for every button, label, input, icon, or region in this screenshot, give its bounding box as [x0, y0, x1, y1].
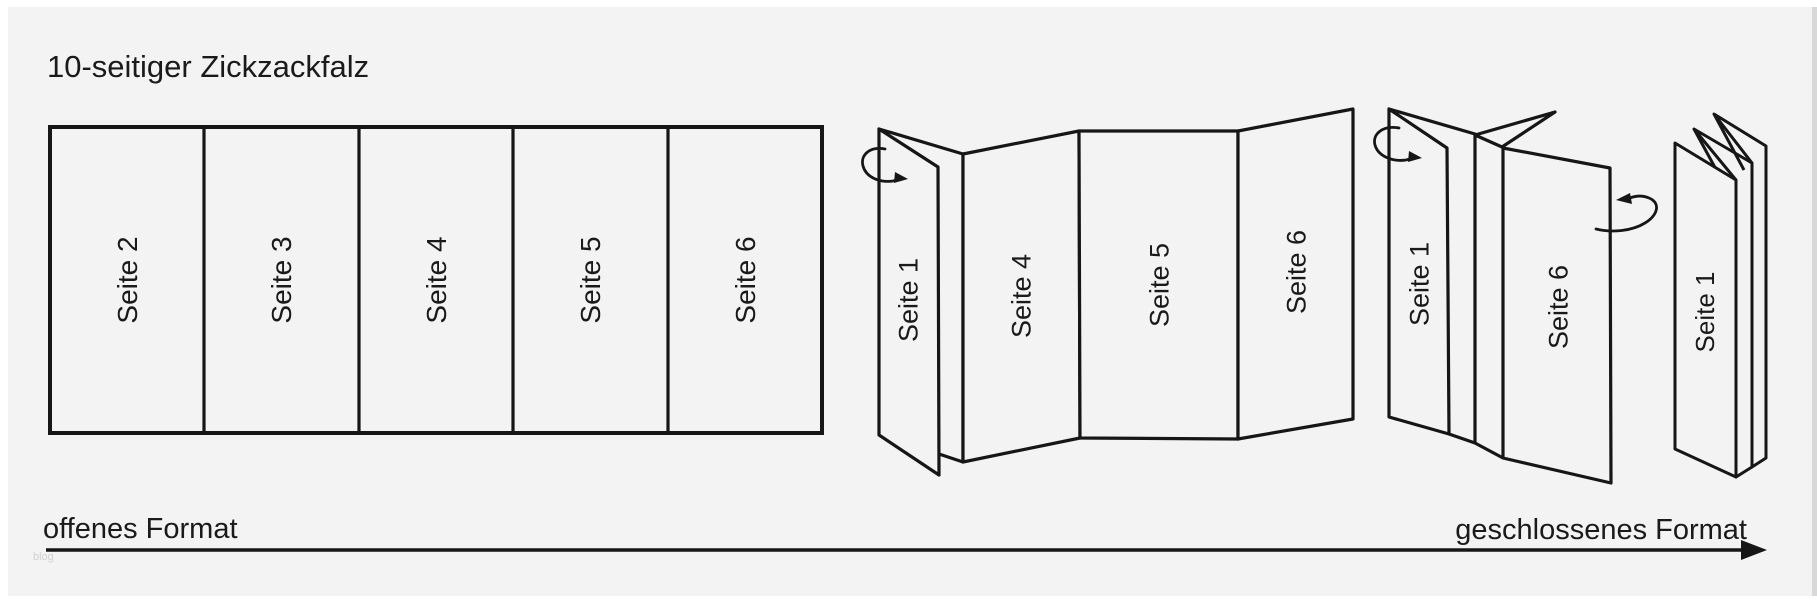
panel-label: Seite 2 — [112, 236, 143, 323]
axis-left-label: offenes Format — [43, 513, 238, 545]
zigzag-fold-diagram-page: 10-seitiger Zickzackfalz blog Seite 2 Se… — [0, 0, 1817, 600]
fold-diagram-canvas: 10-seitiger Zickzackfalz blog Seite 2 Se… — [0, 0, 1817, 600]
panel-label: Seite 5 — [575, 236, 606, 323]
panel-label: Seite 6 — [1281, 230, 1311, 314]
panel-label: Seite 4 — [1006, 254, 1036, 338]
panel-label: Seite 3 — [266, 236, 297, 323]
figure-fully-folded-labels: Seite 1 — [1690, 272, 1720, 353]
panel-label: Seite 1 — [893, 258, 923, 342]
panel-label: Seite 6 — [730, 236, 761, 323]
axis-right-label: geschlossenes Format — [1455, 514, 1747, 546]
panel-label: Seite 1 — [1690, 272, 1720, 353]
watermark-text: blog — [33, 551, 54, 563]
panel-label: Seite 6 — [1543, 265, 1573, 349]
panel-label: Seite 4 — [421, 236, 452, 323]
page-title: 10-seitiger Zickzackfalz — [47, 49, 369, 84]
panel-label: Seite 1 — [1404, 242, 1434, 326]
panel-label: Seite 5 — [1144, 243, 1174, 327]
right-edge-strip — [1812, 7, 1817, 596]
